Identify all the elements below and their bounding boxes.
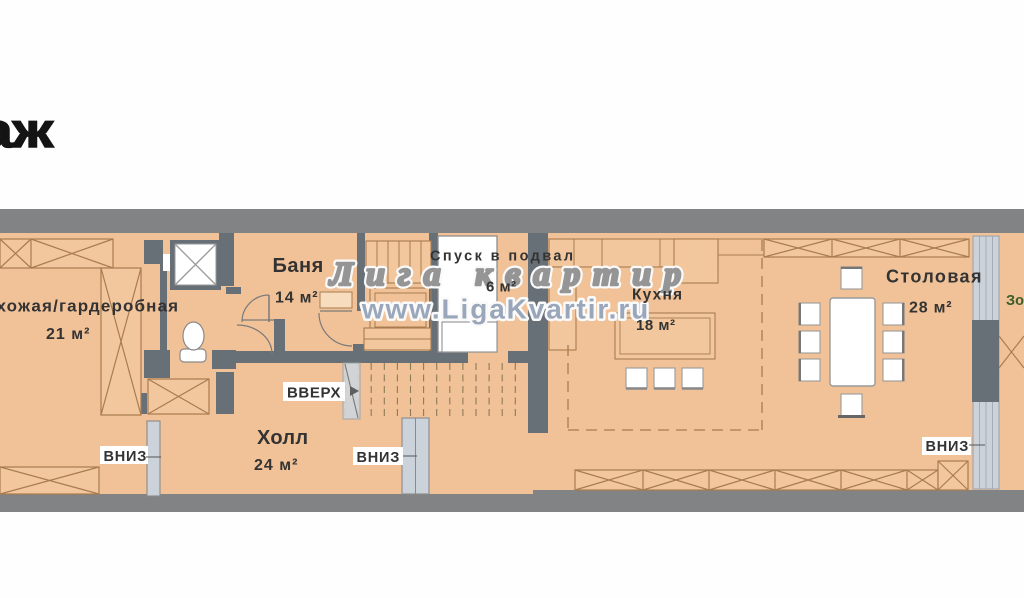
svg-text:ВНИЗ: ВНИЗ <box>926 439 970 455</box>
svg-text:www.LigaKvartir.ru: www.LigaKvartir.ru <box>361 294 650 325</box>
svg-text:аж: аж <box>0 105 54 158</box>
svg-text:24 м²: 24 м² <box>254 457 298 474</box>
svg-text:Спуск в подвал: Спуск в подвал <box>430 249 575 265</box>
svg-text:14 м²: 14 м² <box>275 290 318 307</box>
svg-text:ВНИЗ: ВНИЗ <box>357 450 401 466</box>
svg-text:Баня: Баня <box>273 255 324 277</box>
svg-text:Кухня: Кухня <box>632 287 683 304</box>
svg-text:18 м²: 18 м² <box>636 317 675 334</box>
svg-text:Прихожая/гардеробная: Прихожая/гардеробная <box>0 297 179 316</box>
svg-text:ВВЕРХ: ВВЕРХ <box>287 385 341 402</box>
svg-text:21 м²: 21 м² <box>46 326 90 343</box>
svg-text:Холл: Холл <box>257 427 308 449</box>
svg-text:ВНИЗ: ВНИЗ <box>104 449 148 465</box>
svg-text:Зона: Зона <box>1006 293 1024 309</box>
svg-text:6 м²: 6 м² <box>486 279 517 296</box>
svg-text:Столовая: Столовая <box>886 267 983 287</box>
svg-text:28 м²: 28 м² <box>909 300 952 317</box>
